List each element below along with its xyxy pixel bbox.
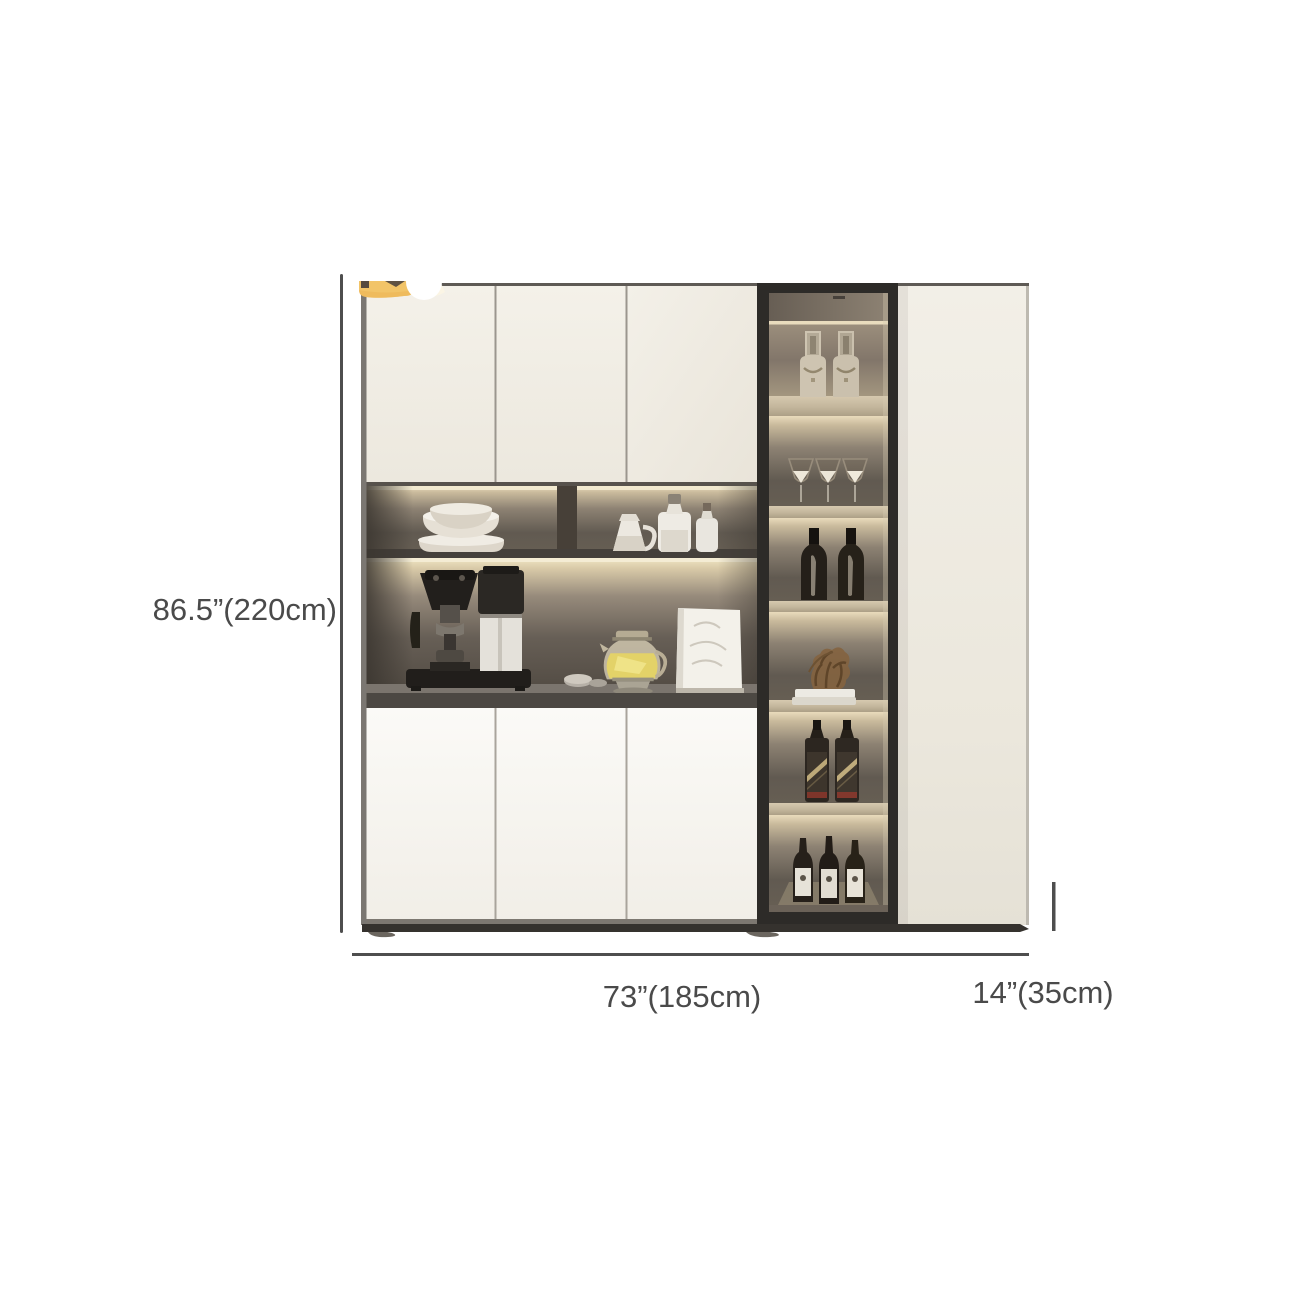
svg-text:86.5”(220cm): 86.5”(220cm) bbox=[153, 592, 337, 627]
svg-text:73”(185cm): 73”(185cm) bbox=[603, 979, 762, 1014]
svg-text:14”(35cm): 14”(35cm) bbox=[972, 975, 1113, 1010]
